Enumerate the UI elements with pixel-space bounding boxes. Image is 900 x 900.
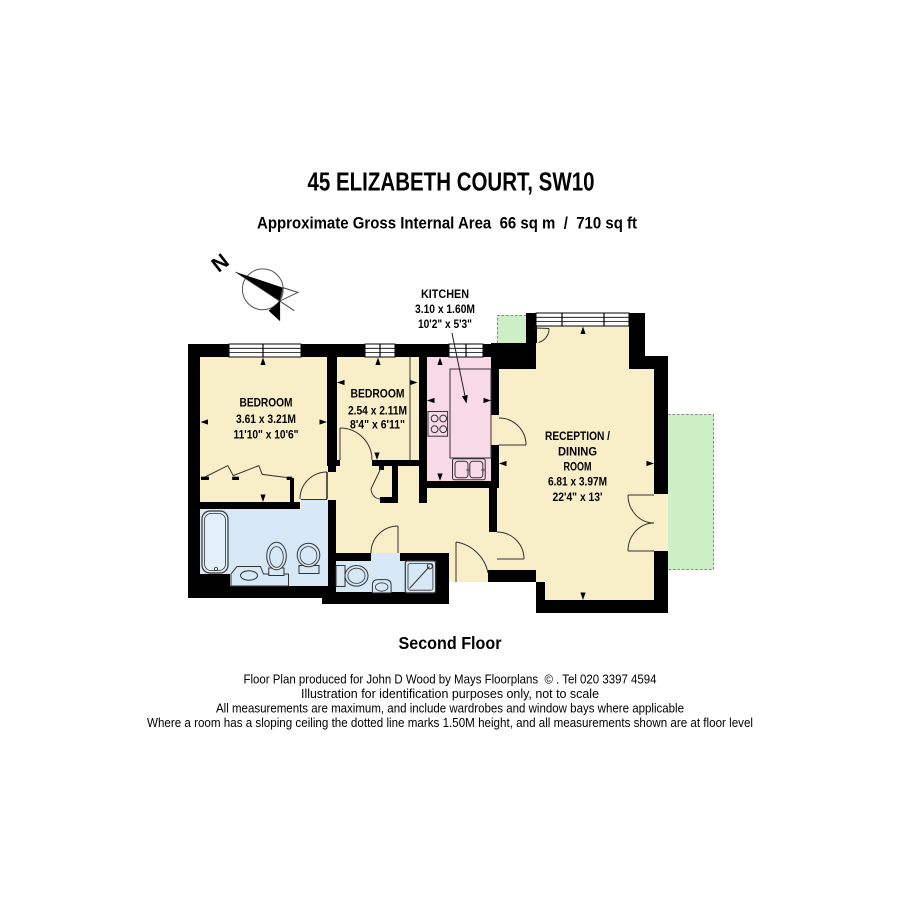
svg-text:BEDROOM: BEDROOM xyxy=(351,387,405,401)
svg-text:3.61 x 3.21M: 3.61 x 3.21M xyxy=(236,412,296,426)
svg-text:DINING: DINING xyxy=(558,445,597,459)
svg-text:22'4" x 13': 22'4" x 13' xyxy=(553,490,603,504)
svg-text:KITCHEN: KITCHEN xyxy=(421,287,469,301)
svg-text:11'10" x 10'6": 11'10" x 10'6" xyxy=(234,428,299,442)
svg-text:3.10 x 1.60M: 3.10 x 1.60M xyxy=(415,302,475,316)
svg-text:Second Floor: Second Floor xyxy=(399,633,502,653)
svg-text:2.54 x 2.11M: 2.54 x 2.11M xyxy=(348,404,407,418)
svg-text:All measurements are maximum,: All measurements are maximum, and includ… xyxy=(216,701,684,716)
svg-text:BEDROOM: BEDROOM xyxy=(240,396,293,410)
svg-text:Where a room has a sloping cei: Where a room has a sloping ceiling the d… xyxy=(147,715,753,730)
svg-text:10'2" x 5'3": 10'2" x 5'3" xyxy=(418,317,472,331)
svg-text:Floor Plan produced for John D: Floor Plan produced for John D Wood by M… xyxy=(244,672,657,687)
svg-text:N: N xyxy=(207,250,233,277)
svg-text:RECEPTION /: RECEPTION / xyxy=(545,429,611,443)
svg-text:6.81 x 3.97M: 6.81 x 3.97M xyxy=(548,475,607,489)
svg-text:8'4" x 6'11": 8'4" x 6'11" xyxy=(350,418,405,432)
svg-text:Illustration for identificatio: Illustration for identification purposes… xyxy=(301,686,599,701)
svg-text:ROOM: ROOM xyxy=(564,459,592,473)
svg-text:45 ELIZABETH COURT, SW10: 45 ELIZABETH COURT, SW10 xyxy=(308,167,595,197)
svg-text:Approximate Gross Internal Are: Approximate Gross Internal Area 66 sq m … xyxy=(257,214,637,233)
